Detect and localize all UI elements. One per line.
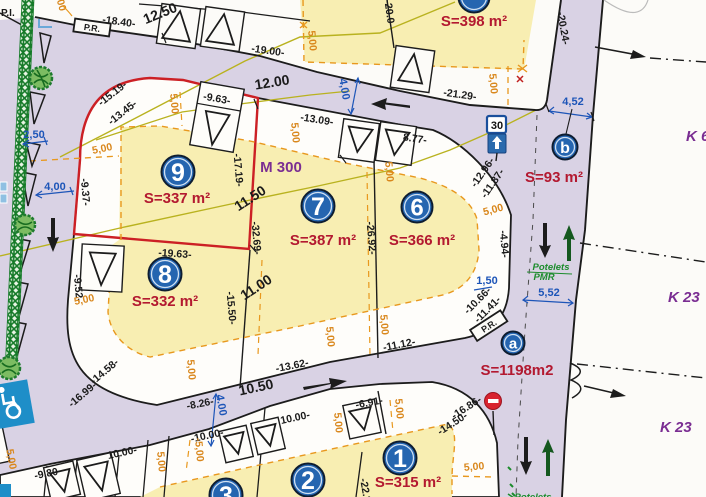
svg-text:5,00: 5,00 — [167, 93, 181, 115]
svg-text:4,52: 4,52 — [562, 96, 583, 108]
svg-text:S=337 m²: S=337 m² — [144, 190, 210, 207]
svg-text:-19.63-: -19.63- — [158, 247, 193, 261]
svg-text:K 23: K 23 — [660, 419, 692, 436]
svg-text:9: 9 — [171, 159, 185, 187]
svg-text:30: 30 — [491, 120, 503, 132]
svg-text:1,50: 1,50 — [476, 275, 497, 287]
svg-text:S=332 m²: S=332 m² — [132, 293, 198, 310]
svg-text:S=315 m²: S=315 m² — [375, 474, 441, 491]
svg-text:3: 3 — [219, 482, 233, 497]
svg-text:S=398 m²: S=398 m² — [441, 13, 507, 30]
svg-text:5,00: 5,00 — [184, 359, 198, 381]
svg-text:5,00: 5,00 — [288, 122, 302, 144]
svg-text:5,52: 5,52 — [538, 287, 559, 299]
svg-text:7: 7 — [311, 193, 325, 221]
svg-text:S=366 m²: S=366 m² — [389, 232, 455, 249]
svg-text:-9.37-: -9.37- — [78, 178, 92, 207]
svg-text:8: 8 — [158, 261, 172, 289]
svg-text:S=1198m2: S=1198m2 — [481, 362, 554, 379]
svg-text:PMR: PMR — [533, 272, 554, 283]
svg-text:6: 6 — [410, 195, 423, 222]
svg-text:S=93 m²: S=93 m² — [525, 169, 583, 186]
svg-text:4,00: 4,00 — [44, 181, 65, 193]
svg-text:K 6: K 6 — [686, 128, 706, 145]
svg-text:5,00: 5,00 — [331, 412, 345, 434]
svg-text:5,00: 5,00 — [323, 326, 337, 348]
svg-text:b: b — [560, 140, 570, 157]
svg-text:2: 2 — [301, 467, 315, 495]
svg-text:5,00: 5,00 — [463, 460, 485, 474]
svg-text:a: a — [509, 335, 518, 352]
svg-text:5,00: 5,00 — [392, 398, 406, 420]
svg-text:2,50: 2,50 — [23, 129, 44, 141]
svg-text:5,00: 5,00 — [486, 73, 500, 95]
svg-text:5,00: 5,00 — [305, 30, 319, 52]
svg-text:-5,00: -5,00 — [192, 437, 206, 462]
svg-text:P.I.: P.I. — [1, 8, 15, 19]
svg-text:Potelets: Potelets — [515, 492, 552, 497]
svg-text:M 300: M 300 — [260, 159, 302, 176]
svg-text:K 23: K 23 — [668, 289, 700, 306]
svg-text:-4.94-: -4.94- — [497, 230, 511, 259]
svg-text:5,00: 5,00 — [154, 451, 168, 473]
svg-text:5,00: 5,00 — [382, 161, 396, 183]
svg-text:1: 1 — [393, 445, 407, 473]
svg-text:S=387 m²: S=387 m² — [290, 232, 356, 249]
svg-text:5,00: 5,00 — [377, 314, 391, 336]
